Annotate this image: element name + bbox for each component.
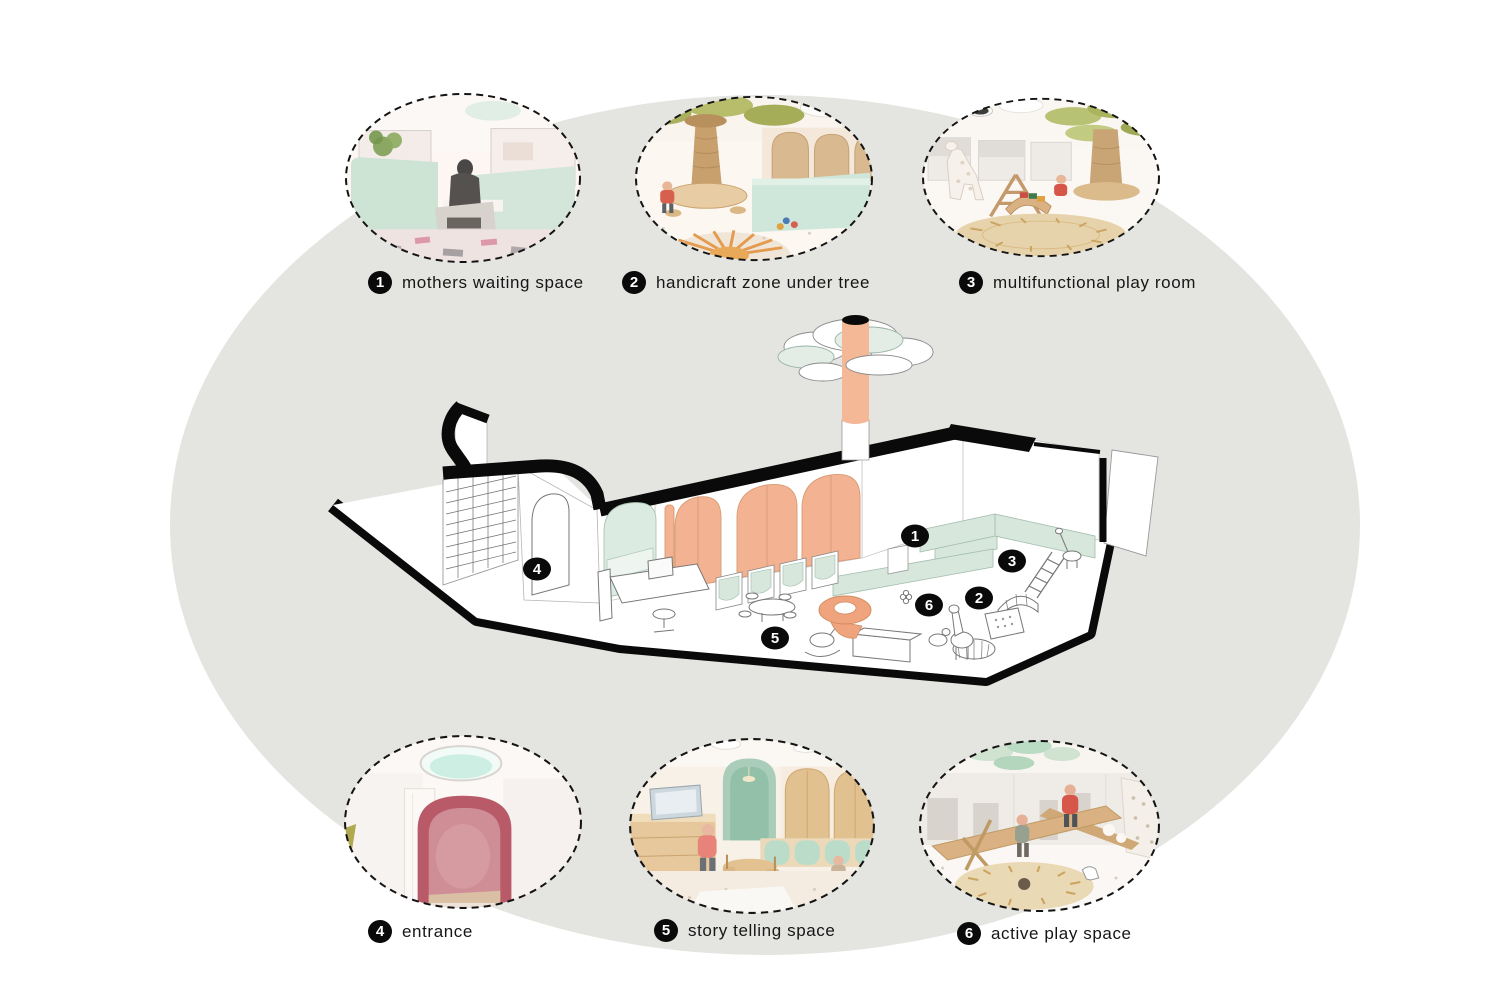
svg-text:2: 2 (975, 590, 983, 607)
legend-label-6: active play space (991, 924, 1132, 944)
plan-marker-6: 6 (915, 594, 943, 617)
plan-marker-5: 5 (761, 627, 789, 650)
photo-scene (627, 736, 877, 916)
svg-text:1: 1 (911, 528, 919, 545)
plan-marker-1: 1 (901, 525, 929, 548)
photo-scene (342, 733, 584, 911)
legend-item-6: 6 active play space (957, 922, 1132, 945)
svg-text:3: 3 (1008, 553, 1016, 570)
photo-handicraft-zone (633, 94, 875, 263)
legend-item-1: 1 mothers waiting space (368, 271, 584, 294)
legend-item-3: 3 multifunctional play room (959, 271, 1196, 294)
legend-badge-1: 1 (368, 271, 392, 294)
legend-label-5: story telling space (688, 921, 835, 941)
plan-marker-3: 3 (998, 550, 1026, 573)
lamb-toy (929, 634, 947, 646)
photo-scene (343, 91, 583, 265)
photo-entrance (342, 733, 584, 911)
photo-scene (917, 738, 1162, 914)
svg-text:5: 5 (771, 630, 779, 647)
right-end-walls (1103, 450, 1158, 556)
plan-marker-4: 4 (523, 558, 551, 581)
legend-label-4: entrance (402, 922, 473, 942)
legend-label-3: multifunctional play room (993, 273, 1196, 293)
legend-badge-6: 6 (957, 922, 981, 945)
office-chair (653, 609, 675, 619)
legend-item-2: 2 handicraft zone under tree (622, 271, 870, 294)
svg-text:6: 6 (925, 597, 933, 614)
plan-marker-2: 2 (965, 587, 993, 610)
presentation-board: 1 2 3 4 5 6 (0, 0, 1500, 1000)
photo-multifunctional-play-room (920, 96, 1162, 259)
legend-item-4: 4 entrance (368, 920, 473, 943)
svg-text:4: 4 (533, 561, 542, 578)
legend-label-2: handicraft zone under tree (656, 273, 870, 293)
photo-mothers-waiting-space (343, 91, 583, 265)
legend-label-1: mothers waiting space (402, 273, 584, 293)
legend-badge-2: 2 (622, 271, 646, 294)
legend-badge-3: 3 (959, 271, 983, 294)
legend-badge-4: 4 (368, 920, 392, 943)
legend-badge-5: 5 (654, 919, 678, 942)
photo-story-telling-space (627, 736, 877, 916)
photo-scene (633, 94, 875, 263)
photo-active-play-space (917, 738, 1162, 914)
legend-item-5: 5 story telling space (654, 919, 835, 942)
photo-scene (920, 96, 1162, 259)
